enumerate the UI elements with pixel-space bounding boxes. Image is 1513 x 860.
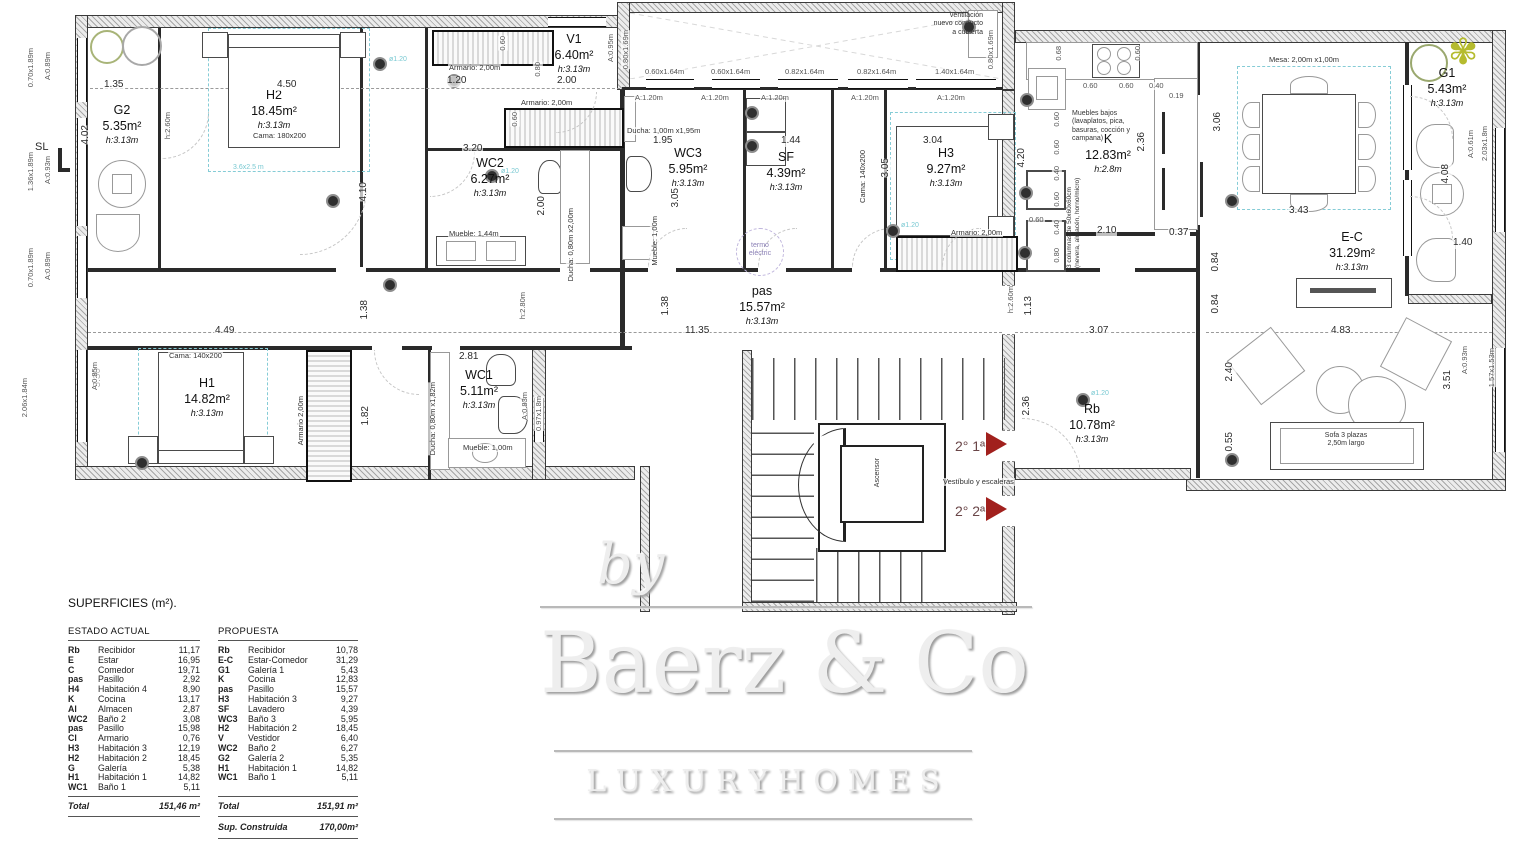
dimension-label: 0.37 (1168, 228, 1189, 239)
plant-icon (122, 26, 162, 66)
furniture-note: Armario: 2,00m (950, 229, 1003, 237)
nightstand (244, 436, 274, 464)
room-height: h:3.13m (474, 188, 507, 199)
window-label: A:0.89m (43, 252, 53, 280)
table-row: WC2 Baño 2 6,27 (218, 744, 358, 754)
total-value: 151,91 m² (306, 801, 358, 811)
dimension-label: 0.68 (1054, 46, 1064, 61)
window-label: A:0.95m (606, 34, 616, 62)
chair (1358, 102, 1376, 128)
room-height: h:3.13m (106, 135, 139, 146)
room-label: G2 5.35m² h:3.13m (90, 103, 154, 147)
total-row-estado: Total 151,46 m² (68, 801, 200, 811)
row-code: WC1 (68, 783, 98, 793)
table-row: E-C Estar-Comedor 31,29 (218, 656, 358, 666)
door-swing (852, 228, 891, 267)
door-gap (852, 267, 880, 273)
row-value: 5,11 (156, 783, 200, 793)
room-height: h:3.13m (930, 178, 963, 189)
chair (1358, 134, 1376, 160)
furniture-note: Vestíbulo y escaleras (942, 478, 1015, 486)
table-row: H2 Habitación 2 18,45 (218, 724, 358, 734)
table-rule (218, 796, 358, 797)
row-value: 5,11 (314, 773, 358, 783)
dimension-label: 1.95 (652, 136, 673, 147)
window (848, 79, 908, 89)
room-label: E-C 31.29m² h:3.13m (1310, 230, 1394, 274)
room-name: G2 (114, 103, 131, 119)
room-label: G1 5.43m² h:3.13m (1414, 66, 1480, 110)
room-height: h:2.8m (1094, 164, 1122, 175)
table-row: H1 Habitación 1 14,82 (218, 764, 358, 774)
dimension-label: 1.82 (360, 406, 373, 425)
estado-rows: Rb Recibidor 11,17 E Estar 16,95 C Comed… (68, 646, 200, 793)
table-rule (68, 796, 200, 797)
dimension-label: 4.08 (1440, 164, 1453, 183)
kitchen-columns-note: 3 columnas de 50x60x60cm (nevera, almacé… (1066, 172, 1082, 268)
window-label: 2.03x1.8m (1480, 126, 1490, 161)
dimension-label: h:2.60m (1006, 286, 1016, 313)
watermark-line (554, 750, 972, 752)
table-row: K Cocina 13,17 (68, 695, 200, 705)
furniture-note: Mueble: 1,00m (650, 216, 660, 266)
room-name: V1 (566, 32, 581, 48)
total-row-propuesta: Total 151,91 m² (218, 801, 358, 811)
table-rule (218, 816, 358, 817)
dimension-label: 4.20 (1016, 148, 1029, 167)
kitchen-counter (1154, 78, 1198, 230)
window-label: A:0.83m (520, 392, 530, 420)
dimension-label: 0.40 (1052, 166, 1062, 181)
room-height: h:3.13m (770, 182, 803, 193)
ceiling-light-icon (373, 57, 387, 71)
dimension-label: 2.36 (1136, 132, 1149, 151)
chair (1242, 102, 1260, 128)
bed-pillow-band (228, 34, 340, 48)
dimension-label: 3.51 (1442, 370, 1455, 389)
furniture-note: Cama: 180x200 (252, 132, 307, 140)
room-height: h:3.13m (1431, 98, 1464, 109)
armchair (1227, 327, 1306, 406)
room-label: H1 14.82m² h:3.13m (160, 376, 254, 420)
dimension-label: 0.80 (533, 62, 543, 77)
dimension-label: 0.60 (1118, 82, 1135, 90)
total-label: Total (218, 801, 306, 811)
water-heater-label: termo eléctric (740, 242, 780, 259)
stair-treads (752, 358, 1005, 420)
window-label: 0.70x1.89m (26, 48, 36, 87)
furniture-note: Ducha: 1,00m x1,95m (626, 127, 701, 135)
nightstand (988, 114, 1014, 140)
cabinet-door (1162, 112, 1165, 154)
furniture-note: Ducha: 0,80m x1,82m (428, 382, 438, 455)
wall (1186, 479, 1506, 491)
table-row: WC1 Baño 1 5,11 (68, 783, 200, 793)
dining-table (1262, 94, 1356, 194)
room-area: 15.57m² (739, 300, 785, 316)
table-rule (68, 816, 200, 817)
ceiling-light-icon (1020, 93, 1034, 107)
room-area: 5.95m² (669, 162, 708, 178)
surface-table: SUPERFICIES (m²). ESTADO ACTUAL PROPUEST… (68, 596, 388, 610)
dimension-label: 4.49 (214, 326, 235, 337)
dimension-label: 1.44 (780, 136, 801, 147)
apartment-door-label: 2° 2ª (955, 503, 985, 519)
room-area: 5.35m² (103, 119, 142, 135)
table-title: SUPERFICIES (m²). (68, 596, 388, 610)
window-label: 0.70x1.89m (26, 248, 36, 287)
window-label: 1.40x1.64m (934, 68, 975, 76)
sl-label: SL (34, 142, 49, 154)
table-row: H2 Habitación 2 18,45 (68, 754, 200, 764)
entry-arrow-icon (986, 432, 1007, 456)
zone-size-label: ø1.20 (900, 222, 920, 229)
ceiling-light-icon (1018, 246, 1032, 260)
dimension-label: 4.10 (358, 182, 371, 201)
dimension-label: 3.05 (880, 158, 893, 177)
room-area: 6.40m² (555, 48, 594, 64)
room-height: h:3.13m (463, 400, 496, 411)
window (712, 79, 760, 89)
door-gap (648, 267, 676, 273)
room-height: h:3.13m (558, 64, 591, 75)
shower-screen (624, 96, 636, 142)
wall (1002, 2, 1015, 90)
dimension-label: 3.20 (462, 144, 483, 155)
window (77, 38, 87, 102)
elevator-label: Ascensor (874, 458, 882, 487)
room-label: H3 9.27m² h:3.13m (908, 146, 984, 190)
window-label: A:0.93m (43, 156, 53, 184)
room-label: SF 4.39m² h:3.13m (750, 150, 822, 194)
entry-arrow-icon (986, 497, 1007, 521)
window (916, 79, 996, 89)
chair (1242, 166, 1260, 192)
table-rule (218, 640, 358, 641)
propuesta-rows: Rb Recibidor 10,78 E-C Estar-Comedor 31,… (218, 646, 358, 783)
sl-symbol (58, 168, 70, 172)
dimension-label: 4.83 (1330, 326, 1351, 337)
dimension-label: 3.05 (670, 188, 683, 207)
room-height: h:3.13m (746, 316, 779, 327)
row-name: Baño 1 (98, 783, 156, 793)
watermark-line (540, 606, 1032, 608)
dimension-label: 2.40 (1224, 362, 1237, 381)
sofa-label: Sofa 3 plazas 2,50m largo (1296, 432, 1396, 449)
room-area: 14.82m² (184, 392, 230, 408)
door-gap (1100, 267, 1135, 273)
wall (158, 28, 161, 270)
built-surface-value: 170,00m² (308, 822, 358, 832)
furniture-note: Armario: 2,00m (448, 64, 501, 72)
wall (75, 15, 627, 28)
dimension-label: h:2.60m (163, 112, 173, 139)
window-label: A:1.20m (850, 94, 880, 102)
sliding-door-leaf (1200, 162, 1203, 217)
ceiling-light-icon (745, 106, 759, 120)
window-label: 0.82x1.64m (856, 68, 897, 76)
ceiling-light-icon (1225, 194, 1239, 208)
room-area: 12.83m² (1085, 148, 1131, 164)
dimension-label: 0.60 (1052, 140, 1062, 155)
dimension-label: 2.00 (556, 76, 577, 87)
tv-console (1296, 278, 1392, 308)
table-row: H3 Habitación 3 9,27 (218, 695, 358, 705)
window-label: A:1.20m (700, 94, 730, 102)
dimension-label: 2.36 (1021, 396, 1034, 415)
window-label: 0.60x1.64m (710, 68, 751, 76)
watermark-line (554, 818, 972, 820)
dimension-label: 0.19 (1168, 92, 1185, 100)
dimension-label: 0.60 (1028, 216, 1045, 224)
table-rule (68, 640, 200, 641)
dimension-label: 4.50 (276, 80, 297, 91)
door-swing (374, 350, 419, 395)
window-label: A:0.85m (90, 362, 100, 390)
window-label: 0.82x1.64m (784, 68, 825, 76)
room-name: H1 (199, 376, 215, 392)
furniture-note: Mueble: 1,00m (462, 444, 514, 452)
ceiling-light-icon (886, 224, 900, 238)
room-name: WC3 (674, 146, 702, 162)
dimension-label: 1.38 (359, 300, 372, 319)
ventilation-note: ventilación nuevo conducto a cubierta (905, 12, 983, 37)
bed-pillow-band (158, 450, 244, 464)
window-label: 1.36x1.89m (26, 152, 36, 191)
room-area: 4.39m² (767, 166, 806, 182)
toilet (538, 160, 562, 194)
table-row: V Vestidor 6,40 (218, 734, 358, 744)
table-row: C Comedor 19,71 (68, 666, 200, 676)
hob-burner (1117, 47, 1131, 61)
window-label: 2.06x1.84m (20, 378, 30, 417)
dimension-label: 0.60 (498, 36, 508, 51)
furniture-note: Mesa: 2,00m x1,00m (1268, 56, 1340, 64)
hob-burner (1097, 47, 1111, 61)
room-area: 5.11m² (460, 384, 498, 400)
room-area: 10.78m² (1069, 418, 1115, 434)
window-label: 1.57x1.53m (1487, 348, 1497, 387)
wardrobe (306, 350, 352, 482)
ceiling-light-icon (326, 194, 340, 208)
watermark-by: by (597, 532, 664, 597)
room-label: WC1 5.11m² h:3.13m (440, 368, 518, 412)
window-label: A:0.61m (1466, 130, 1476, 158)
room-area: 31.29m² (1329, 246, 1375, 262)
kitchen-sink-basin (1036, 76, 1058, 100)
chair (1358, 166, 1376, 192)
hob-burner (1117, 61, 1131, 75)
dimension-label: 0.80 (1052, 248, 1062, 263)
room-name: E-C (1341, 230, 1363, 246)
room-name: pas (752, 284, 772, 300)
ceiling-light-icon (135, 456, 149, 470)
room-label: WC3 5.95m² h:3.13m (650, 146, 726, 190)
ceiling-light-icon (383, 278, 397, 292)
dimension-label: 1.13 (1023, 296, 1036, 315)
sink-basin (446, 241, 476, 261)
wall (742, 350, 752, 612)
window-label: A:1.20m (936, 94, 966, 102)
furniture-note: Armario 2,00m (296, 396, 306, 445)
dimension-label: 4.02 (80, 125, 93, 144)
room-label: H2 18.45m² h:3.13m (222, 88, 326, 132)
zone-size-label: ø1.20 (500, 168, 520, 175)
row-name: Baño 1 (248, 773, 314, 783)
built-surface-row: Sup. Construida 170,00m² (218, 822, 358, 832)
sink-basin (486, 241, 516, 261)
window (548, 17, 606, 27)
wardrobe (432, 30, 554, 66)
table-row: SF Lavadero 4,39 (218, 705, 358, 715)
window-label: 0.60x1.64m (644, 68, 685, 76)
dimension-label: 0.84 (1210, 294, 1223, 313)
window-label: A:0.89m (43, 52, 53, 80)
nightstand (340, 32, 366, 58)
furniture-note: Ducha: 0,80m x2,00m (566, 208, 576, 281)
toilet (626, 156, 652, 192)
table-rule (218, 838, 358, 839)
room-height: h:3.13m (258, 120, 291, 131)
window-label: 0.97x1.8m (534, 396, 544, 431)
furniture-note: Armario: 2,00m (520, 99, 573, 107)
dimension-label: 0.60 (1082, 82, 1099, 90)
room-height: h:3.13m (191, 408, 224, 419)
dimension-label: 2.00 (536, 196, 549, 215)
column-header-propuesta: PROPUESTA (218, 626, 279, 637)
dimension-label: 0.84 (1210, 252, 1223, 271)
dimension-label: 0.60 (1133, 46, 1143, 61)
furniture-note: Cama: 140x200 (168, 352, 223, 360)
dimension-label: 2.10 (1096, 226, 1117, 237)
room-label: pas 15.57m² h:3.13m (722, 284, 802, 328)
total-value: 151,46 m² (148, 801, 200, 811)
chair (1242, 134, 1260, 160)
zone-size-label: 3.6x2.5 m (232, 164, 265, 171)
room-name: K (1104, 132, 1112, 148)
wall (831, 90, 834, 270)
dimension-label: 1.35 (103, 80, 124, 91)
ceiling-light-icon (1019, 186, 1033, 200)
dimension-label: 11.35 (684, 326, 710, 337)
cabinet-door (1162, 168, 1165, 210)
room-label: Rb 10.78m² h:3.13m (1054, 402, 1130, 446)
row-code: WC1 (218, 773, 248, 783)
room-name: G1 (1439, 66, 1456, 82)
furniture-note: Mueble: 1,44m (448, 230, 500, 238)
window (646, 79, 694, 89)
dimension-label: 0.40 (1148, 82, 1165, 90)
room-name: H3 (938, 146, 954, 162)
window-label: 0.80x1.69m (621, 30, 631, 69)
window (778, 79, 838, 89)
tv (1310, 288, 1376, 293)
room-area: 5.43m² (1428, 82, 1467, 98)
zone-size-label: ø1.20 (388, 56, 408, 63)
table-inset (112, 174, 132, 194)
dimension-label: 0.40 (1052, 220, 1062, 235)
dimension-label: 1.20 (446, 76, 467, 87)
table-row: pas Pasillo 15,98 (68, 724, 200, 734)
dimension-label: 0.60 (1052, 192, 1062, 207)
window-label: A:1.20m (760, 94, 790, 102)
wall (75, 466, 635, 480)
floor-plan-canvas: ventilación nuevo conducto a cubierta te… (0, 0, 1513, 860)
window (77, 236, 87, 298)
table-inset (1432, 184, 1452, 204)
apartment-door-label: 2° 1ª (955, 438, 985, 454)
plant-icon (90, 30, 124, 64)
dimension-label: 1.40 (1452, 238, 1473, 249)
room-area: 18.45m² (251, 104, 297, 120)
zone-size-label: ø1.20 (1090, 390, 1110, 397)
room-name: SF (778, 150, 794, 166)
plant-icon: ✾ (1448, 34, 1478, 70)
ceiling-light-icon (1225, 453, 1239, 467)
dimension-label: 0.60 (510, 112, 520, 127)
stair-treads (816, 548, 942, 602)
room-name: Rb (1084, 402, 1100, 418)
built-surface-label: Sup. Construida (218, 822, 308, 832)
room-height: h:3.13m (1076, 434, 1109, 445)
dimension-label: 0.60 (1052, 112, 1062, 127)
chair (1416, 238, 1456, 282)
room-name: WC1 (465, 368, 493, 384)
dimension-label: 3.06 (1212, 112, 1225, 131)
dimension-label: 3.04 (922, 136, 943, 147)
dimension-label: h:2.80m (518, 292, 528, 319)
room-area: 9.27m² (927, 162, 966, 178)
dimension-label: 3.43 (1288, 206, 1309, 217)
window (1495, 128, 1505, 232)
dimension-label: 0.55 (1224, 432, 1237, 451)
furniture-note: Cama: 140x200 (858, 150, 868, 203)
watermark-tagline: L U X U R Y H O M E S (554, 764, 972, 799)
room-height: h:3.13m (1336, 262, 1369, 273)
chair (1290, 76, 1328, 94)
column-header-estado: ESTADO ACTUAL (68, 626, 150, 637)
wall (1408, 294, 1492, 304)
door-gap (432, 345, 460, 351)
hob-burner (1097, 61, 1111, 75)
watermark-brand: Baerz & Co (540, 614, 976, 712)
door-gap (336, 267, 366, 273)
nightstand (202, 32, 228, 58)
wall (425, 148, 622, 151)
window (77, 350, 87, 442)
window-label: A:1.20m (634, 94, 664, 102)
room-label: V1 6.40m² h:3.13m (538, 32, 610, 76)
total-label: Total (68, 801, 148, 811)
dimension-label: 1.38 (660, 296, 673, 315)
room-label: WC2 6.27m² h:3.13m (452, 156, 528, 200)
room-label: K 12.83m² h:2.8m (1078, 132, 1138, 176)
chair (96, 214, 140, 252)
dimension-label: 2.81 (458, 352, 479, 363)
window-label: 0.80x1.69m (986, 30, 996, 69)
window-label: A:0.93m (1460, 346, 1470, 374)
dimension-label: 3.07 (1088, 326, 1109, 337)
table-row: WC1 Baño 1 5,11 (218, 773, 358, 783)
